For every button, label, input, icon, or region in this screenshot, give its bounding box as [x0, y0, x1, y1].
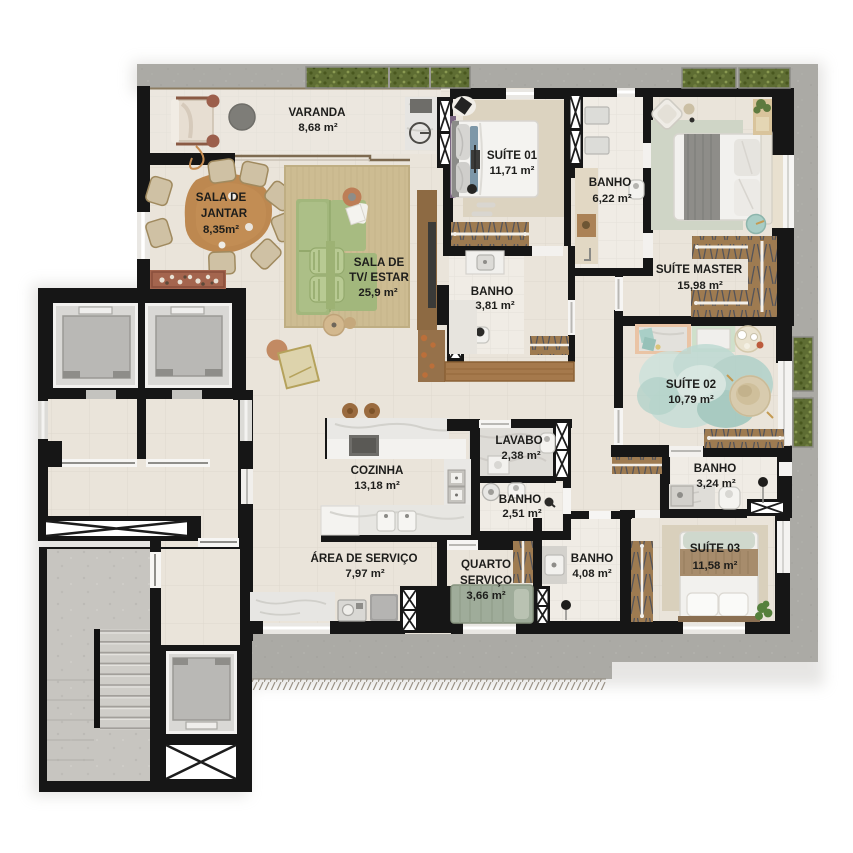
- svg-text:2,51 m²: 2,51 m²: [502, 508, 541, 520]
- svg-text:BANHO: BANHO: [589, 176, 632, 189]
- svg-text:15,98 m²: 15,98 m²: [677, 280, 723, 292]
- svg-text:25,9 m²: 25,9 m²: [358, 287, 397, 299]
- svg-text:COZINHA: COZINHA: [351, 464, 404, 477]
- svg-text:BANHO: BANHO: [471, 285, 514, 298]
- svg-text:BANHO: BANHO: [571, 552, 614, 565]
- svg-text:3,24 m²: 3,24 m²: [696, 478, 735, 490]
- svg-text:3,66 m²: 3,66 m²: [466, 590, 505, 602]
- svg-text:13,18 m²: 13,18 m²: [354, 480, 400, 492]
- svg-text:11,71 m²: 11,71 m²: [490, 165, 535, 177]
- svg-text:BANHO: BANHO: [499, 493, 542, 506]
- svg-text:SALA DE: SALA DE: [354, 256, 405, 269]
- svg-text:8,68 m²: 8,68 m²: [298, 122, 337, 134]
- svg-text:11,58 m²: 11,58 m²: [693, 560, 738, 572]
- svg-text:ÁREA DE SERVIÇO: ÁREA DE SERVIÇO: [311, 552, 418, 565]
- svg-text:SUÍTE 03: SUÍTE 03: [690, 542, 741, 555]
- svg-text:SUÍTE 02: SUÍTE 02: [666, 378, 716, 391]
- svg-text:SALA DE: SALA DE: [196, 191, 247, 204]
- svg-text:7,97 m²: 7,97 m²: [345, 568, 384, 580]
- svg-text:TV/ ESTAR: TV/ ESTAR: [349, 271, 409, 284]
- svg-text:4,08 m²: 4,08 m²: [572, 568, 611, 580]
- svg-text:JANTAR: JANTAR: [201, 207, 248, 220]
- svg-text:6,22 m²: 6,22 m²: [592, 193, 631, 205]
- svg-text:2,38 m²: 2,38 m²: [501, 450, 540, 462]
- svg-text:QUARTO: QUARTO: [461, 558, 511, 571]
- svg-text:10,79 m²: 10,79 m²: [668, 394, 714, 406]
- svg-text:SUÍTE 01: SUÍTE 01: [487, 149, 538, 162]
- svg-text:3,81 m²: 3,81 m²: [475, 300, 514, 312]
- svg-text:SUÍTE MASTER: SUÍTE MASTER: [656, 263, 743, 276]
- svg-text:8,35m²: 8,35m²: [203, 224, 239, 236]
- svg-text:BANHO: BANHO: [694, 462, 737, 475]
- svg-text:LAVABO: LAVABO: [495, 434, 542, 447]
- svg-text:VARANDA: VARANDA: [288, 106, 346, 119]
- svg-text:SERVIÇO: SERVIÇO: [460, 574, 512, 587]
